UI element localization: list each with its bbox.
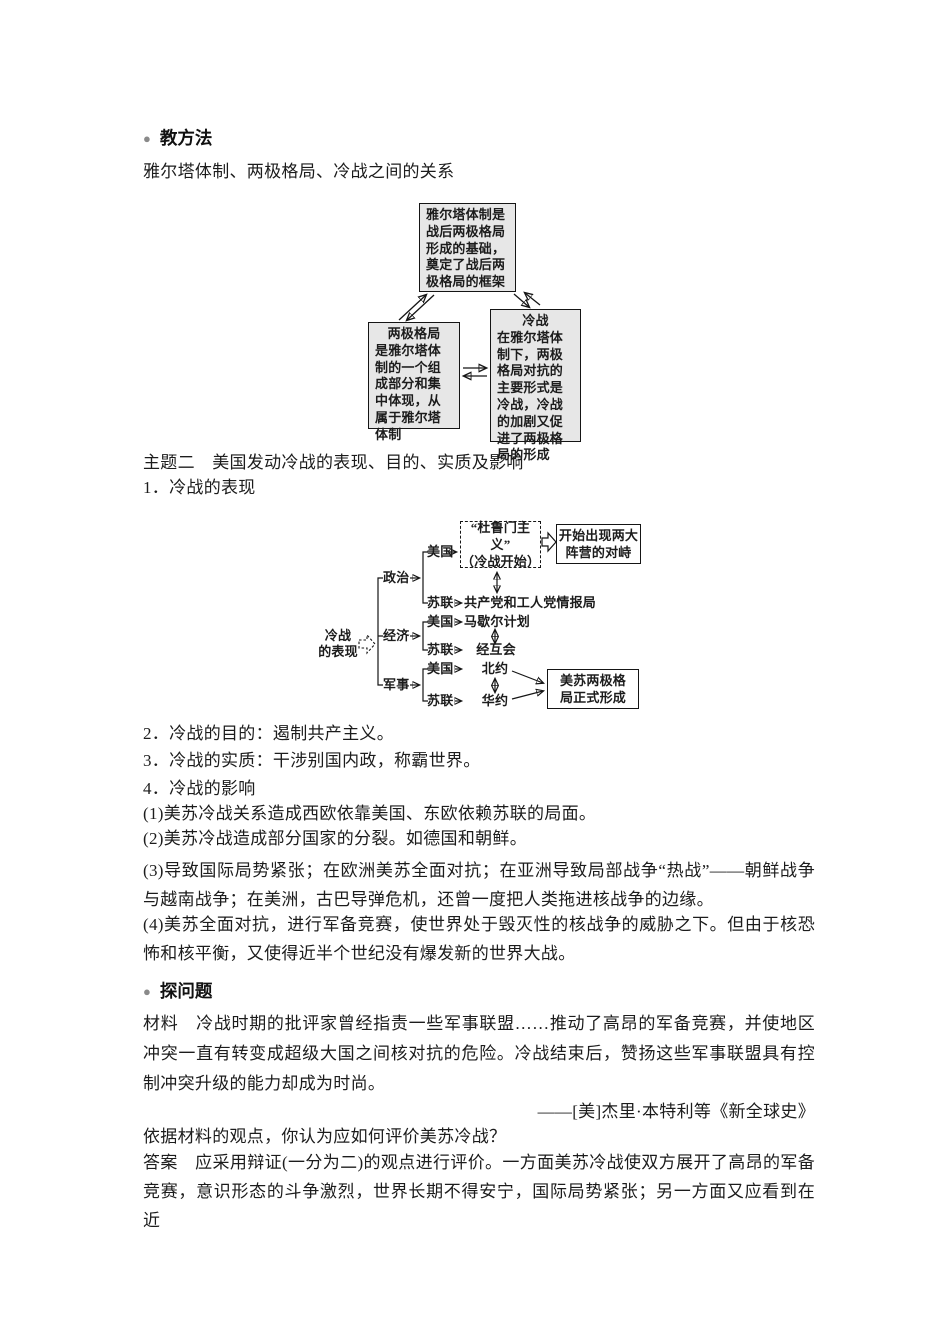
section-heading-method-label: 教方法 xyxy=(160,127,213,149)
comecon-label: 经互会 xyxy=(457,642,535,658)
truman-doctrine-box: “杜鲁门主义” （冷战开始） xyxy=(460,521,541,568)
yalta-system-box: 雅尔塔体制是战后两极格局形成的基础，奠定了战后两极格局的框架 xyxy=(419,203,516,292)
effect3-para: (3)导致国际局势紧张；在欧洲美苏全面对抗；在亚洲导致局部战争“热战”——朝鲜战… xyxy=(143,856,815,914)
branch-economy-label: 经济 xyxy=(383,628,409,644)
bipolar-pattern-box-title: 两极格局 xyxy=(375,326,453,343)
politics-ussr-label: 苏联 xyxy=(427,595,453,611)
page: ● 教方法 雅尔塔体制、两极格局、冷战之间的关系 雅尔塔体制是战后两极格局形成的… xyxy=(0,0,950,1344)
relation-line: 雅尔塔体制、两极格局、冷战之间的关系 xyxy=(143,160,815,184)
relation-diagram: 雅尔塔体制是战后两极格局形成的基础，奠定了战后两极格局的框架 两极格局 是雅尔塔… xyxy=(0,198,950,448)
branch-politics-label: 政治 xyxy=(383,570,409,586)
warsaw-pact-label: 华约 xyxy=(456,693,534,709)
economy-ussr-label: 苏联 xyxy=(427,642,453,658)
bipolar-formed-box: 美苏两极格 局正式形成 xyxy=(547,669,639,709)
answer-para: 答案 应采用辩证(一分为二)的观点进行评价。一方面美苏冷战使双方展开了高昂的军备… xyxy=(143,1148,815,1235)
military-ussr-label: 苏联 xyxy=(427,693,453,709)
attribution-line: ——[美]杰里·本特利等《新全球史》 xyxy=(143,1100,815,1124)
bipolar-pattern-box-body: 是雅尔塔体制的一个组成部分和集中体现，从属于雅尔塔体制 xyxy=(375,343,453,444)
politics-us-label: 美国 xyxy=(427,544,453,560)
topic2-line: 主题二 美国发动冷战的表现、目的、实质及影响 xyxy=(143,451,815,475)
section-heading-explore: ● 探问题 xyxy=(143,980,815,1002)
two-camps-box: 开始出现两大 阵营的对峙 xyxy=(556,524,641,564)
economy-us-label: 美国 xyxy=(427,614,453,630)
bullet-icon: ● xyxy=(143,985,151,998)
item2-line: 2．冷战的目的：遏制共产主义。 xyxy=(143,722,815,746)
cold-war-box: 冷战 在雅尔塔体制下，两极格局对抗的主要形式是冷战，冷战的加剧又促进了两极格局的… xyxy=(490,309,581,442)
bipolar-pattern-box: 两极格局 是雅尔塔体制的一个组成部分和集中体现，从属于雅尔塔体制 xyxy=(368,322,460,429)
item3-line: 3．冷战的实质：干涉别国内政，称霸世界。 xyxy=(143,749,815,773)
bullet-icon: ● xyxy=(143,132,151,145)
effect4-para: (4)美苏全面对抗，进行军备竞赛，使世界处于毁灭性的核战争的威胁之下。但由于核恐… xyxy=(143,910,815,968)
cold-war-box-title: 冷战 xyxy=(497,313,574,330)
effect2-line: (2)美苏冷战造成部分国家的分裂。如德国和朝鲜。 xyxy=(143,827,815,851)
cold-war-box-body: 在雅尔塔体制下，两极格局对抗的主要形式是冷战，冷战的加剧又促进了两极格局的形成 xyxy=(497,330,574,464)
material-para: 材料 冷战时期的批评家曾经指责一些军事联盟……推动了高昂的军备竞赛，并使地区冲突… xyxy=(143,1009,815,1099)
effect1-line: (1)美苏冷战关系造成西欧依靠美国、东欧依赖苏联的局面。 xyxy=(143,802,815,826)
nato-label: 北约 xyxy=(456,661,534,677)
section-heading-method: ● 教方法 xyxy=(143,127,815,149)
cominform-label: 共产党和工人党情报局 xyxy=(464,595,596,611)
question-line: 依据材料的观点，你认为应如何评价美苏冷战？ xyxy=(143,1125,815,1149)
military-us-label: 美国 xyxy=(427,661,453,677)
marshall-plan-label: 马歇尔计划 xyxy=(460,614,534,630)
branch-military-label: 军事 xyxy=(383,677,409,693)
item4-line: 4．冷战的影响 xyxy=(143,777,815,801)
section-heading-explore-label: 探问题 xyxy=(160,980,213,1002)
coldwar-flowchart: 冷战 的表现 政治 经济 军事 美国 苏联 美国 苏联 美国 苏联 “杜鲁门主义… xyxy=(0,515,950,722)
flowchart-root-label: 冷战 的表现 xyxy=(312,628,364,660)
item1-line: 1．冷战的表现 xyxy=(143,476,815,500)
